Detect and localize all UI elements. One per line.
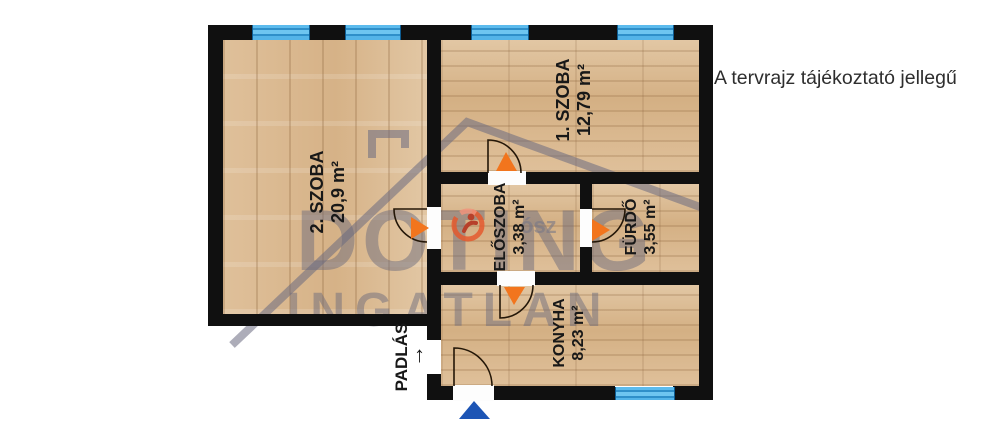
- wall-furdo-left-lower: [580, 247, 592, 272]
- room-name: ELŐSZOBA: [492, 183, 511, 272]
- wall-konyha-bottom-3: [673, 386, 713, 400]
- wall-mid-horizontal-left: [427, 272, 497, 285]
- room-name: FÜRDŐ: [623, 199, 642, 256]
- disclaimer-text: A tervrajz tájékoztató jellegű: [714, 67, 957, 90]
- entrance-threshold: [453, 385, 494, 401]
- entrance-triangle-icon: [459, 401, 490, 419]
- room-name: KONYHA: [551, 298, 570, 367]
- window-icon: [345, 25, 401, 40]
- room2-label: 2. SZOBA 20,9 m²: [307, 150, 349, 233]
- wall-konyha-bottom-1: [427, 386, 453, 400]
- room1-label: 1. SZOBA 12,79 m²: [553, 58, 595, 141]
- furdo-label: FÜRDŐ 3,55 m²: [623, 199, 661, 256]
- attic-label-text: PADLÁS: [392, 323, 412, 392]
- wall-center-vertical-upper: [427, 25, 441, 207]
- floorplan-canvas: DOTING INGATLAN: [0, 0, 1000, 443]
- room-area: 12,79 m²: [574, 58, 595, 141]
- wall-right: [699, 25, 713, 400]
- room-name: 1. SZOBA: [553, 58, 574, 141]
- attic-up-arrow-icon: ↑: [414, 342, 425, 368]
- wall-room1-bottom-right: [526, 172, 713, 184]
- door-threshold: [427, 207, 441, 249]
- room-area: 3,38 m²: [511, 183, 530, 272]
- wall-konyha-bottom-2: [494, 386, 615, 400]
- wall-furdo-left-upper: [580, 184, 592, 209]
- wall-room1-bottom-left: [441, 172, 488, 184]
- door-threshold: [497, 271, 535, 286]
- room-area: 3,55 m²: [642, 199, 661, 256]
- room-area: 20,9 m²: [328, 150, 349, 233]
- wall-mid-horizontal-right: [535, 272, 713, 285]
- window-icon: [471, 25, 529, 40]
- window-icon: [252, 25, 310, 40]
- room-area: 8,23 m²: [570, 298, 589, 367]
- window-icon: [615, 387, 675, 400]
- room-name: 2. SZOBA: [307, 150, 328, 233]
- konyha-label: KONYHA 8,23 m²: [551, 298, 589, 367]
- attic-label: PADLÁS: [392, 323, 412, 392]
- wall-left: [208, 25, 223, 326]
- wall-center-vertical-middle: [427, 249, 441, 340]
- eloszoba-label: ELŐSZOBA 3,38 m²: [492, 183, 530, 272]
- window-icon: [617, 25, 674, 40]
- door-threshold: [580, 209, 592, 247]
